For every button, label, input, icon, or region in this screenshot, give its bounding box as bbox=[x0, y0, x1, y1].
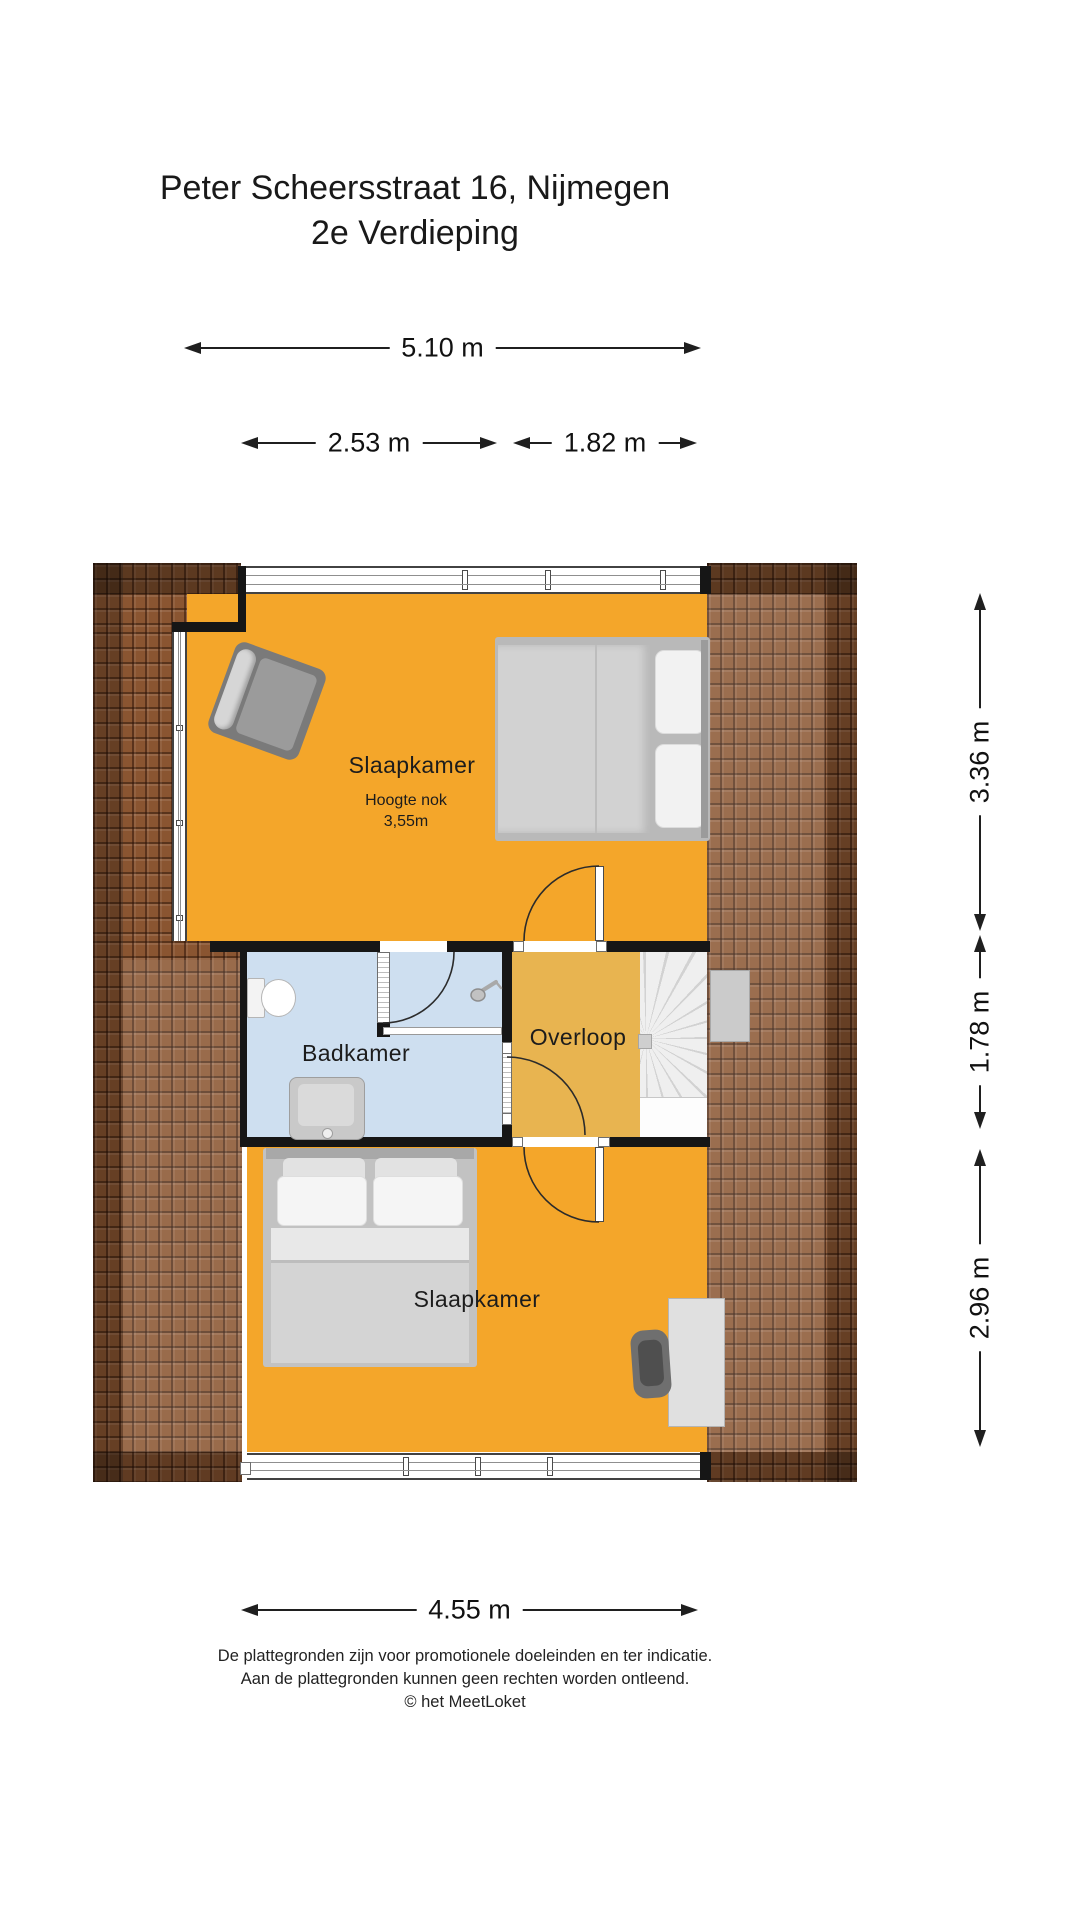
arrow-right-icon bbox=[681, 1604, 698, 1616]
window-mullion bbox=[176, 915, 183, 921]
wall bbox=[700, 566, 711, 594]
arrow-up-icon bbox=[974, 935, 986, 952]
bed-duvet-fold bbox=[595, 645, 597, 833]
dimension-label: 1.82 m bbox=[552, 428, 659, 459]
dimension-label: 3.36 m bbox=[965, 709, 996, 816]
door-jamb bbox=[512, 1137, 523, 1147]
double-bed-icon bbox=[263, 1148, 477, 1367]
window-mullion bbox=[545, 570, 551, 590]
footer-line: Aan de plattegronden kunnen geen rechten… bbox=[0, 1668, 930, 1691]
door-jamb bbox=[598, 1137, 610, 1147]
washbasin-icon bbox=[289, 1077, 365, 1140]
door-jamb bbox=[596, 941, 607, 952]
desk-icon bbox=[668, 1298, 725, 1427]
room-label-bedroom-bottom: Slaapkamer bbox=[377, 1286, 577, 1313]
bed-pillow bbox=[655, 650, 705, 734]
door-leaf-bathroom bbox=[377, 952, 390, 1023]
floorplan-page: Peter Scheersstraat 16, Nijmegen 2e Verd… bbox=[0, 0, 1080, 1920]
window-mullion bbox=[403, 1457, 409, 1476]
door-jamb bbox=[502, 1113, 512, 1125]
roof-edge-shadow bbox=[93, 563, 123, 1482]
window-mullion bbox=[462, 570, 468, 590]
page-title: Peter Scheersstraat 16, Nijmegen 2e Verd… bbox=[50, 166, 780, 256]
door-leaf-bedroom-bottom bbox=[595, 1147, 604, 1222]
roof-eaves-shadow bbox=[93, 1452, 242, 1482]
chair-seat bbox=[637, 1339, 664, 1387]
dimension-label: 5.10 m bbox=[389, 333, 496, 364]
dimension-right-middle: 1.78 m bbox=[972, 936, 988, 1128]
dimension-right-top: 3.36 m bbox=[972, 594, 988, 930]
arrow-right-icon bbox=[684, 342, 701, 354]
arrow-up-icon bbox=[974, 1149, 986, 1166]
bed-duvet bbox=[498, 645, 650, 833]
washbasin-faucet bbox=[322, 1128, 333, 1139]
arrow-down-icon bbox=[974, 1112, 986, 1129]
footer-disclaimer: De plattegronden zijn voor promotionele … bbox=[0, 1645, 930, 1714]
wall bbox=[700, 1452, 711, 1480]
chimney-block bbox=[710, 970, 750, 1042]
window-left bbox=[172, 632, 187, 941]
bed-headboard bbox=[701, 640, 708, 838]
arrow-left-icon bbox=[241, 1604, 258, 1616]
arrow-up-icon bbox=[974, 593, 986, 610]
window-jamb bbox=[240, 1462, 251, 1475]
arrow-left-icon bbox=[184, 342, 201, 354]
arrow-right-icon bbox=[680, 437, 697, 449]
dimension-label: 4.55 m bbox=[416, 1595, 523, 1626]
window-bottom bbox=[247, 1453, 700, 1480]
wall bbox=[607, 941, 710, 952]
page-title-address: Peter Scheersstraat 16, Nijmegen bbox=[50, 166, 780, 211]
room-label-bathroom: Badkamer bbox=[256, 1040, 456, 1067]
bed-pillow bbox=[277, 1176, 367, 1226]
room-note-ridge-height: Hoogte nok 3,55m bbox=[306, 790, 506, 832]
window-mullion bbox=[176, 725, 183, 731]
dimension-total-width: 5.10 m bbox=[185, 340, 700, 356]
bed-sheet bbox=[271, 1228, 469, 1262]
dimension-label: 2.96 m bbox=[965, 1245, 996, 1352]
washbasin-bowl bbox=[298, 1084, 354, 1126]
dimension-bottom-width: 4.55 m bbox=[242, 1602, 697, 1618]
double-bed-icon bbox=[495, 637, 710, 841]
window-mullion bbox=[660, 570, 666, 590]
dimension-right-bottom: 2.96 m bbox=[972, 1150, 988, 1446]
page-title-floor: 2e Verdieping bbox=[50, 211, 780, 256]
armchair-frame bbox=[205, 639, 328, 762]
footer-line: © het MeetLoket bbox=[0, 1691, 930, 1714]
arrow-right-icon bbox=[480, 437, 497, 449]
window-mullion bbox=[475, 1457, 481, 1476]
office-chair-icon bbox=[626, 1328, 677, 1399]
wall bbox=[210, 941, 380, 952]
note-line: 3,55m bbox=[306, 811, 506, 832]
window-mullion bbox=[547, 1457, 553, 1476]
arrow-down-icon bbox=[974, 914, 986, 931]
room-label-landing: Overloop bbox=[478, 1024, 678, 1051]
room-label-bedroom-top: Slaapkamer bbox=[312, 752, 512, 779]
bed-pillow bbox=[373, 1176, 463, 1226]
roof-eaves-shadow bbox=[707, 1452, 857, 1482]
roof-dormer-highlight bbox=[123, 960, 242, 1452]
wall bbox=[610, 1137, 710, 1147]
bed-pillow bbox=[655, 744, 705, 828]
window-mullion bbox=[176, 820, 183, 826]
note-line: Hoogte nok bbox=[306, 790, 506, 811]
arrow-left-icon bbox=[241, 437, 258, 449]
dimension-label: 2.53 m bbox=[316, 428, 423, 459]
door-leaf-bedroom-top bbox=[595, 866, 604, 941]
window-top bbox=[241, 566, 700, 594]
footer-line: De plattegronden zijn voor promotionele … bbox=[0, 1645, 930, 1668]
dimension-top-left: 2.53 m bbox=[242, 435, 496, 451]
arrow-left-icon bbox=[513, 437, 530, 449]
roof-edge-shadow bbox=[827, 563, 857, 1482]
toilet-bowl bbox=[261, 979, 296, 1017]
dimension-top-right: 1.82 m bbox=[514, 435, 696, 451]
door-jamb bbox=[513, 941, 524, 952]
dimension-label: 1.78 m bbox=[965, 979, 996, 1086]
arrow-down-icon bbox=[974, 1430, 986, 1447]
wall bbox=[240, 941, 247, 1147]
stair-landing bbox=[640, 1097, 707, 1138]
wall bbox=[240, 1137, 512, 1147]
